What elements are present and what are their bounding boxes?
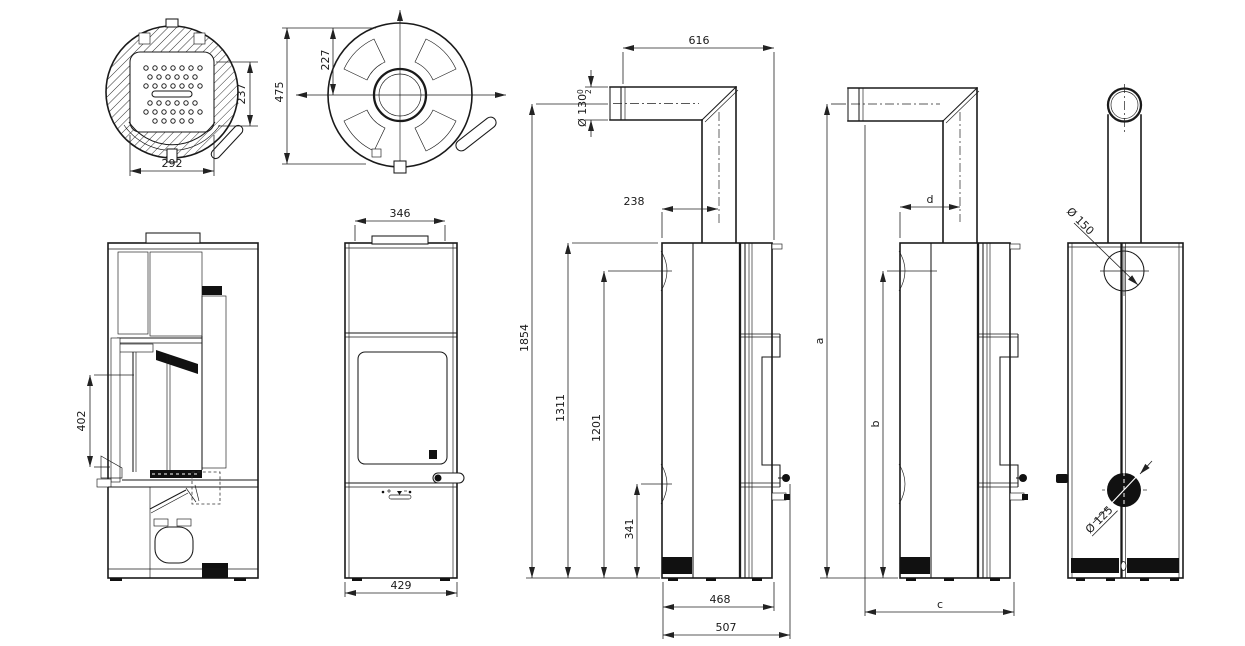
dim-air-inlet-height: 341 xyxy=(623,519,636,540)
flue-stub-section xyxy=(146,233,200,243)
rear-vent-side-vars xyxy=(900,557,930,574)
dim-var-d: d xyxy=(927,193,934,206)
side-body xyxy=(662,243,772,578)
flue-connector-vars xyxy=(848,88,979,243)
view-top-cross-section: 292 237 xyxy=(106,19,258,176)
storage-opening xyxy=(155,527,193,563)
latch-block-left xyxy=(139,33,150,44)
dim-flue-offset-plan: 227 xyxy=(319,50,332,71)
dim-rear-flue-diameter-group: Ø 150 xyxy=(1064,205,1097,238)
drawing-sheet: 292 237 475 227 xyxy=(0,0,1245,646)
rear-vent-strip-right xyxy=(1127,558,1179,573)
view-plan: 475 227 xyxy=(273,10,506,173)
view-rear: Ø 150 Ø 125 xyxy=(1056,84,1183,581)
dim-body-depth: 468 xyxy=(710,593,731,606)
damper xyxy=(202,286,222,295)
vent-slot-ne xyxy=(415,39,456,80)
handle-knob-side xyxy=(782,474,790,482)
dim-overall-depth-plan: 475 xyxy=(273,82,286,103)
view-side-elevation: 616 Ø 130 0 2 238 1854 1311 1201 341 468 xyxy=(518,34,790,639)
rear-vent-side xyxy=(662,557,692,574)
dim-firebox-depth: 237 xyxy=(235,84,248,105)
vent-slot-sw xyxy=(344,110,385,151)
dim-glass-height: 402 xyxy=(75,411,88,432)
dim-rear-outlet-height: 1201 xyxy=(590,414,603,442)
side-body-vars xyxy=(900,243,1010,578)
dim-base-width: 429 xyxy=(391,579,412,592)
view-front: 346 429 xyxy=(345,207,464,597)
air-slot xyxy=(152,91,192,97)
dim-connector-reach: 616 xyxy=(689,34,710,47)
technical-drawing-canvas: 292 237 475 227 xyxy=(0,0,1245,646)
dim-flue-tol-lower: 2 xyxy=(584,89,593,94)
dim-overall-depth: 507 xyxy=(716,621,737,634)
door-latch xyxy=(429,450,437,459)
air-inlet-stub xyxy=(97,479,111,487)
rear-stub xyxy=(166,19,178,27)
view-side-elevation-variables: a d b c xyxy=(813,88,1028,616)
dim-flue-pipe-diameter-group: Ø 130 0 2 xyxy=(576,89,593,127)
front-outline xyxy=(345,243,457,578)
dim-flue-pipe-diameter: Ø 130 xyxy=(576,94,589,127)
dim-rear-flue-diameter: Ø 150 xyxy=(1064,205,1097,238)
view-vertical-section: 402 xyxy=(75,233,258,581)
latch-block-right xyxy=(194,33,205,44)
flue-connector xyxy=(610,87,738,243)
dim-body-height: 1311 xyxy=(554,394,567,422)
front-pivot xyxy=(394,161,406,173)
dim-flue-center-to-rear: 238 xyxy=(624,195,645,208)
door-frame-section xyxy=(111,338,120,482)
top-collar-front xyxy=(372,236,428,244)
dim-var-b: b xyxy=(869,420,882,427)
base-vent-section xyxy=(202,563,228,578)
dim-var-a: a xyxy=(813,338,826,345)
dim-overall-height: 1854 xyxy=(518,324,531,352)
vent-slot-nw xyxy=(344,39,385,80)
rear-vent-strip-left xyxy=(1071,558,1119,573)
dim-firebox-width: 292 xyxy=(162,157,183,170)
air-control-side xyxy=(772,493,786,500)
vent-slot-se xyxy=(415,110,456,151)
side-knob-rear xyxy=(1056,474,1068,483)
handle-knob-side-vars xyxy=(1019,474,1027,482)
front-latch xyxy=(372,149,381,157)
dim-top-diameter: 346 xyxy=(390,207,411,220)
dim-var-c: c xyxy=(937,598,943,611)
upper-chamber xyxy=(150,252,202,336)
